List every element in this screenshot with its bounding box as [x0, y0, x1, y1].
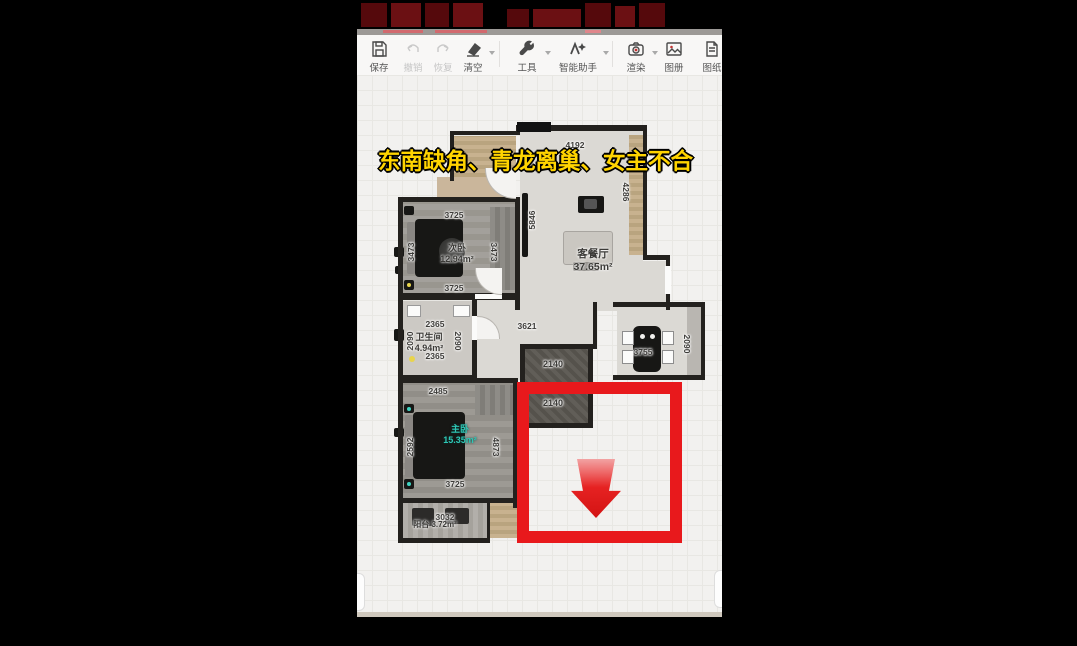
- canvas-bottom-edge: [357, 612, 722, 617]
- wall-balcony-right: [487, 503, 490, 543]
- wall-kitchen-right: [701, 302, 705, 380]
- lamp-dot: [407, 482, 411, 486]
- wall-master-bottom: [398, 498, 518, 503]
- dim-label: 3725: [446, 479, 465, 489]
- wall-bath-right: [472, 300, 477, 380]
- page: 保存 撤销 恢复 清空: [0, 0, 1077, 646]
- room-name: 客餐厅: [577, 248, 609, 260]
- right-panel-handle[interactable]: [714, 570, 722, 608]
- room-name: 阳台: [413, 520, 429, 529]
- room-label-master: 主卧 15.35m²: [443, 422, 477, 445]
- dining-chair: [622, 331, 634, 345]
- wall-kitchen-bottom: [613, 375, 705, 380]
- wall-entry-top: [450, 131, 520, 135]
- dim-label: 4873: [491, 438, 501, 457]
- dim-label: 3621: [518, 321, 537, 331]
- dim-label: 3725: [445, 283, 464, 293]
- wall-store-top: [520, 344, 593, 349]
- table-setting: [650, 334, 655, 339]
- video-frame[interactable]: 保存 撤销 恢复 清空: [357, 0, 722, 617]
- nightstand: [404, 206, 414, 215]
- dim-label: 5846: [527, 211, 537, 230]
- lamp-dot: [407, 283, 411, 287]
- wall-balcony-bottom: [398, 538, 490, 543]
- video-caption: 东南缺角、青龙离巢、女主不合: [378, 144, 693, 176]
- drain-dot: [409, 356, 415, 362]
- left-panel-handle[interactable]: [357, 573, 365, 611]
- master-wardrobe: [475, 385, 513, 415]
- lamp-dot: [407, 407, 411, 411]
- wall-outer-left: [398, 197, 403, 543]
- dim-label: 2090: [453, 332, 463, 351]
- room-area: 15.35m²: [443, 435, 477, 445]
- wall-kitchen-top: [613, 302, 705, 307]
- room-label-balcony: 阳台 3.72m²: [413, 519, 457, 530]
- room-name: 卫生间: [415, 332, 442, 342]
- room-area: 37.65m²: [573, 261, 612, 273]
- room-label-living: 客餐厅 37.65m²: [573, 246, 612, 273]
- utility-shaft: [490, 503, 518, 538]
- room-area: 4.94m²: [415, 343, 444, 353]
- dim-label: 2140: [543, 359, 563, 369]
- dim-label: 2485: [429, 386, 448, 396]
- hallway-floor: [477, 298, 520, 380]
- dining-chair: [662, 331, 674, 345]
- dim-label: 3755: [634, 347, 653, 357]
- wall-master-top: [398, 378, 518, 383]
- wall-connector: [593, 302, 597, 349]
- dim-label: 3473: [489, 243, 499, 262]
- bathroom-sink: [453, 305, 470, 317]
- dining-chair: [622, 350, 634, 364]
- room-label-bathroom: 卫生间 4.94m²: [415, 330, 444, 353]
- room-label-bedroom2: 次卧 12.94m²: [440, 241, 474, 264]
- room-area: 3.72m²: [431, 520, 456, 529]
- room-name: 次卧: [448, 243, 466, 253]
- living-tv-screen: [584, 199, 597, 209]
- dim-label: 2090: [682, 335, 692, 354]
- balcony-door-opening: [665, 266, 671, 294]
- room-area: 12.94m²: [440, 254, 474, 264]
- dining-chair: [662, 350, 674, 364]
- dim-label: 4286: [621, 183, 631, 202]
- table-setting: [640, 334, 645, 339]
- dim-label: 2592: [405, 438, 415, 457]
- dim-label: 2365: [426, 319, 445, 329]
- dim-label: 3725: [445, 210, 464, 220]
- dim-label: 2090: [405, 332, 415, 351]
- wall-bed2-top: [398, 197, 520, 202]
- toilet: [407, 305, 421, 317]
- dim-label: 3473: [406, 243, 416, 262]
- entry-threshold: [517, 122, 551, 132]
- room-name: 主卧: [451, 424, 469, 434]
